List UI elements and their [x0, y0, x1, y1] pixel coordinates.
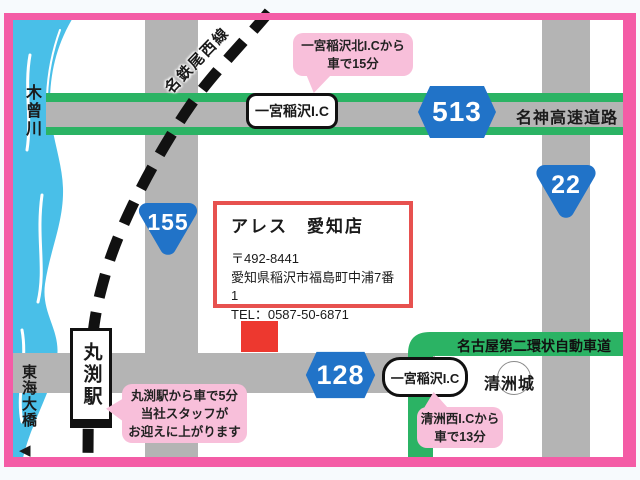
railway-terminus-bar [70, 420, 112, 428]
bubble-west-ic: 清洲西I.Cから 車で13分 [417, 407, 503, 448]
ring-road-label: 名古屋第二環状自動車道 [457, 336, 611, 356]
bubble-north-ic-line2: 車で15分 [293, 55, 413, 73]
bubble-west-ic-line2: 車で13分 [417, 428, 503, 446]
shop-address: 愛知県稲沢市福島町中浦7番1 [231, 269, 397, 306]
bubble-north-ic: 一宮稲沢北I.Cから 車で15分 [293, 33, 413, 76]
shop-title: アレス 愛知店 [231, 212, 397, 237]
route-badge-22: 22 [535, 162, 597, 222]
shop-info-box: アレス 愛知店 〒492-8441 愛知県稲沢市福島町中浦7番1 TEL：058… [213, 201, 413, 308]
route-badge-513: 513 [417, 85, 497, 139]
route-badge-155: 155 [137, 201, 199, 258]
frame-top [4, 13, 636, 20]
interchange-box-top: 一宮稲沢I.C [246, 93, 338, 129]
frame-left [4, 13, 13, 467]
shop-location-marker [241, 321, 278, 352]
bridge-label: 東海大橋 [18, 364, 39, 428]
station-label: 丸渕駅 [78, 342, 105, 408]
frame-bottom [4, 457, 636, 467]
shop-tel: TEL：0587-50-6871 [231, 306, 397, 325]
bubble-station: 丸渕駅から車で5分 当社スタッフが お迎えに上がります [122, 384, 247, 443]
bubble-station-line2: 当社スタッフが [122, 405, 247, 423]
expressway-label: 名神高速道路 [516, 104, 618, 128]
bubble-west-ic-line1: 清洲西I.Cから [417, 410, 503, 428]
castle-label: 清洲城 [484, 370, 535, 394]
interchange-box-bottom: 一宮稲沢I.C [382, 357, 468, 397]
access-map: 名神高速道路 名古屋第二環状自動車道 名鉄尾西線 513 128 22 155 … [0, 0, 640, 480]
bubble-station-line3: お迎えに上がります [122, 423, 247, 441]
bubble-station-line1: 丸渕駅から車で5分 [122, 387, 247, 405]
frame-right [623, 13, 636, 467]
route-badge-128: 128 [302, 351, 379, 399]
bubble-north-ic-line1: 一宮稲沢北I.Cから [293, 37, 413, 55]
shop-postal: 〒492-8441 [231, 250, 397, 269]
station-box: 丸渕駅 [70, 328, 112, 422]
river-label: 木曾川 [19, 84, 43, 138]
